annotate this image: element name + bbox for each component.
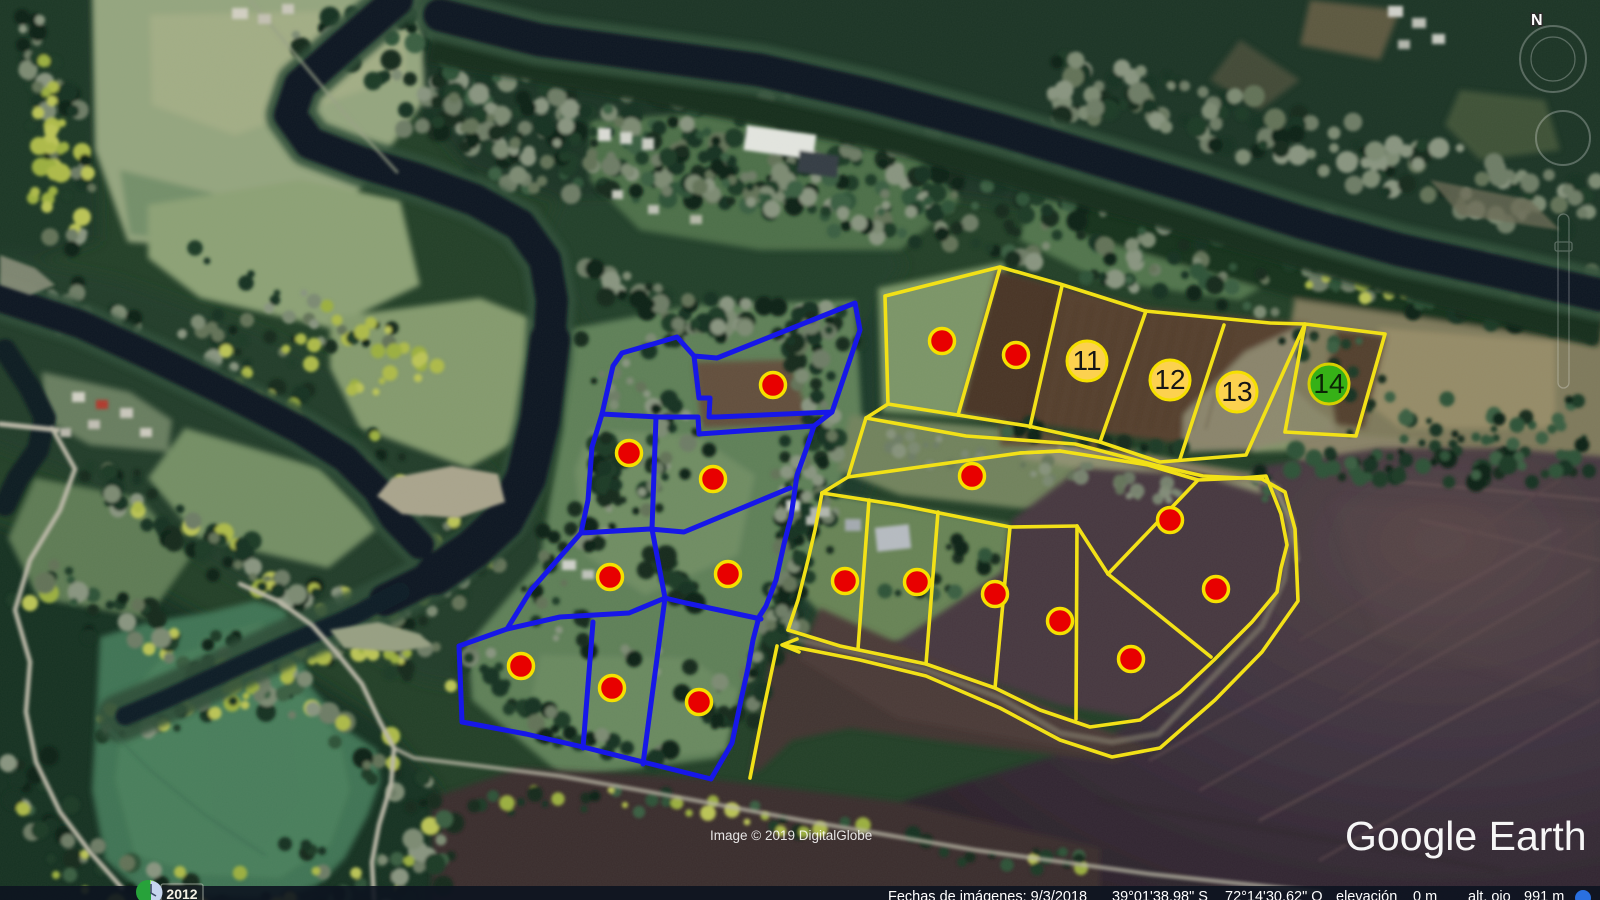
svg-text:Image © 2019 DigitalGlobe: Image © 2019 DigitalGlobe	[710, 828, 872, 843]
svg-text:39°01'38.98" S: 39°01'38.98" S	[1112, 889, 1208, 900]
svg-text:13: 13	[1221, 376, 1252, 407]
svg-text:991 m: 991 m	[1524, 889, 1564, 900]
svg-text:2012: 2012	[166, 886, 197, 900]
svg-text:elevación: elevación	[1336, 889, 1397, 900]
svg-text:alt. ojo: alt. ojo	[1468, 889, 1511, 900]
svg-text:0 m: 0 m	[1413, 889, 1437, 900]
svg-text:Fechas de imágenes: 9/3/2018: Fechas de imágenes: 9/3/2018	[888, 889, 1087, 900]
svg-text:N: N	[1531, 12, 1543, 29]
svg-text:72°14'30.62" O: 72°14'30.62" O	[1225, 889, 1323, 900]
svg-text:Google Earth: Google Earth	[1345, 813, 1587, 859]
svg-text:11: 11	[1072, 345, 1101, 376]
svg-text:12: 12	[1154, 364, 1185, 395]
svg-text:14: 14	[1313, 368, 1344, 399]
